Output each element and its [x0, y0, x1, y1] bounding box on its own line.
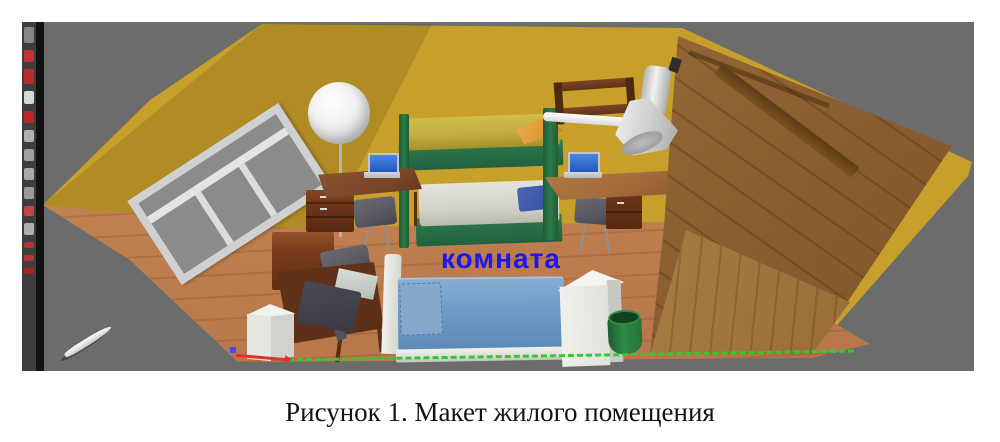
stool-side: [271, 314, 294, 360]
partial-tool-icon-gray-5[interactable]: [24, 187, 34, 199]
partial-tool-icon-gray-4[interactable]: [24, 168, 34, 180]
figure-caption: Рисунок 1. Макет жилого помещения: [0, 397, 1000, 428]
partial-tool-icon-red-4[interactable]: [24, 206, 34, 216]
partial-tool-icon-gray-3[interactable]: [24, 149, 34, 161]
room-label: комната: [441, 243, 561, 275]
window-stile: [239, 163, 278, 217]
left-laptop: [364, 172, 400, 178]
feather-blade: [63, 324, 113, 359]
partial-tool-icon-red-3[interactable]: [24, 111, 34, 123]
floor-lamp[interactable]: [308, 82, 370, 144]
3d-editor-screenshot: комната: [22, 22, 974, 371]
partial-tool-icon-red-1[interactable]: [24, 50, 34, 62]
left-laptop-screen: [368, 153, 399, 174]
axis-origin-blue: [230, 347, 236, 353]
bunk-post-right: [543, 108, 558, 240]
active-tool-icon[interactable]: [24, 27, 34, 43]
partial-tool-icon-gray-1[interactable]: [24, 91, 34, 104]
feather-object[interactable]: [55, 322, 115, 370]
partial-tool-icon-red-7[interactable]: [24, 268, 34, 274]
partial-tool-icon-red-2[interactable]: [24, 69, 34, 84]
window-stile: [195, 191, 234, 245]
left-toolbar: [22, 22, 44, 371]
bed-pillow: [399, 282, 443, 335]
green-bin[interactable]: [605, 309, 645, 357]
white-stool[interactable]: [247, 302, 295, 362]
partial-tool-icon-gray-2[interactable]: [24, 130, 34, 142]
right-laptop: [564, 172, 602, 178]
partial-tool-icon-red-5[interactable]: [24, 242, 34, 248]
document-page: комната Рисунок 1. Макет жилого помещени…: [0, 0, 1000, 442]
right-laptop-screen: [568, 152, 600, 174]
partial-tool-icon-red-6[interactable]: [24, 255, 34, 261]
left-desk-chair: [353, 196, 398, 228]
toolbar-icon-strip: [22, 22, 36, 371]
toolbar-edge: [36, 22, 44, 371]
partial-tool-icon-gray-6[interactable]: [24, 223, 34, 235]
